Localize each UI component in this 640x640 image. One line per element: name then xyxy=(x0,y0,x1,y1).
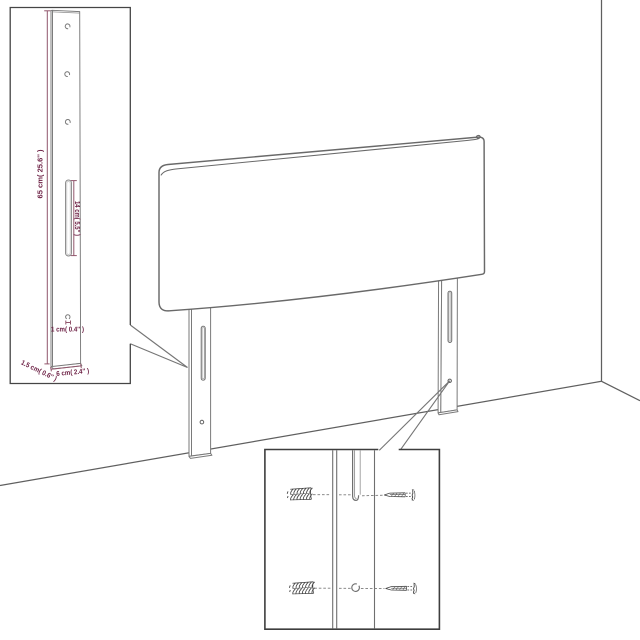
svg-text:1 cm( 0.4'' ): 1 cm( 0.4'' ) xyxy=(51,327,84,334)
svg-text:14 cm( 5.5'' ): 14 cm( 5.5'' ) xyxy=(73,201,80,236)
svg-text:65 cm( 25.6'' ): 65 cm( 25.6'' ) xyxy=(36,149,45,199)
